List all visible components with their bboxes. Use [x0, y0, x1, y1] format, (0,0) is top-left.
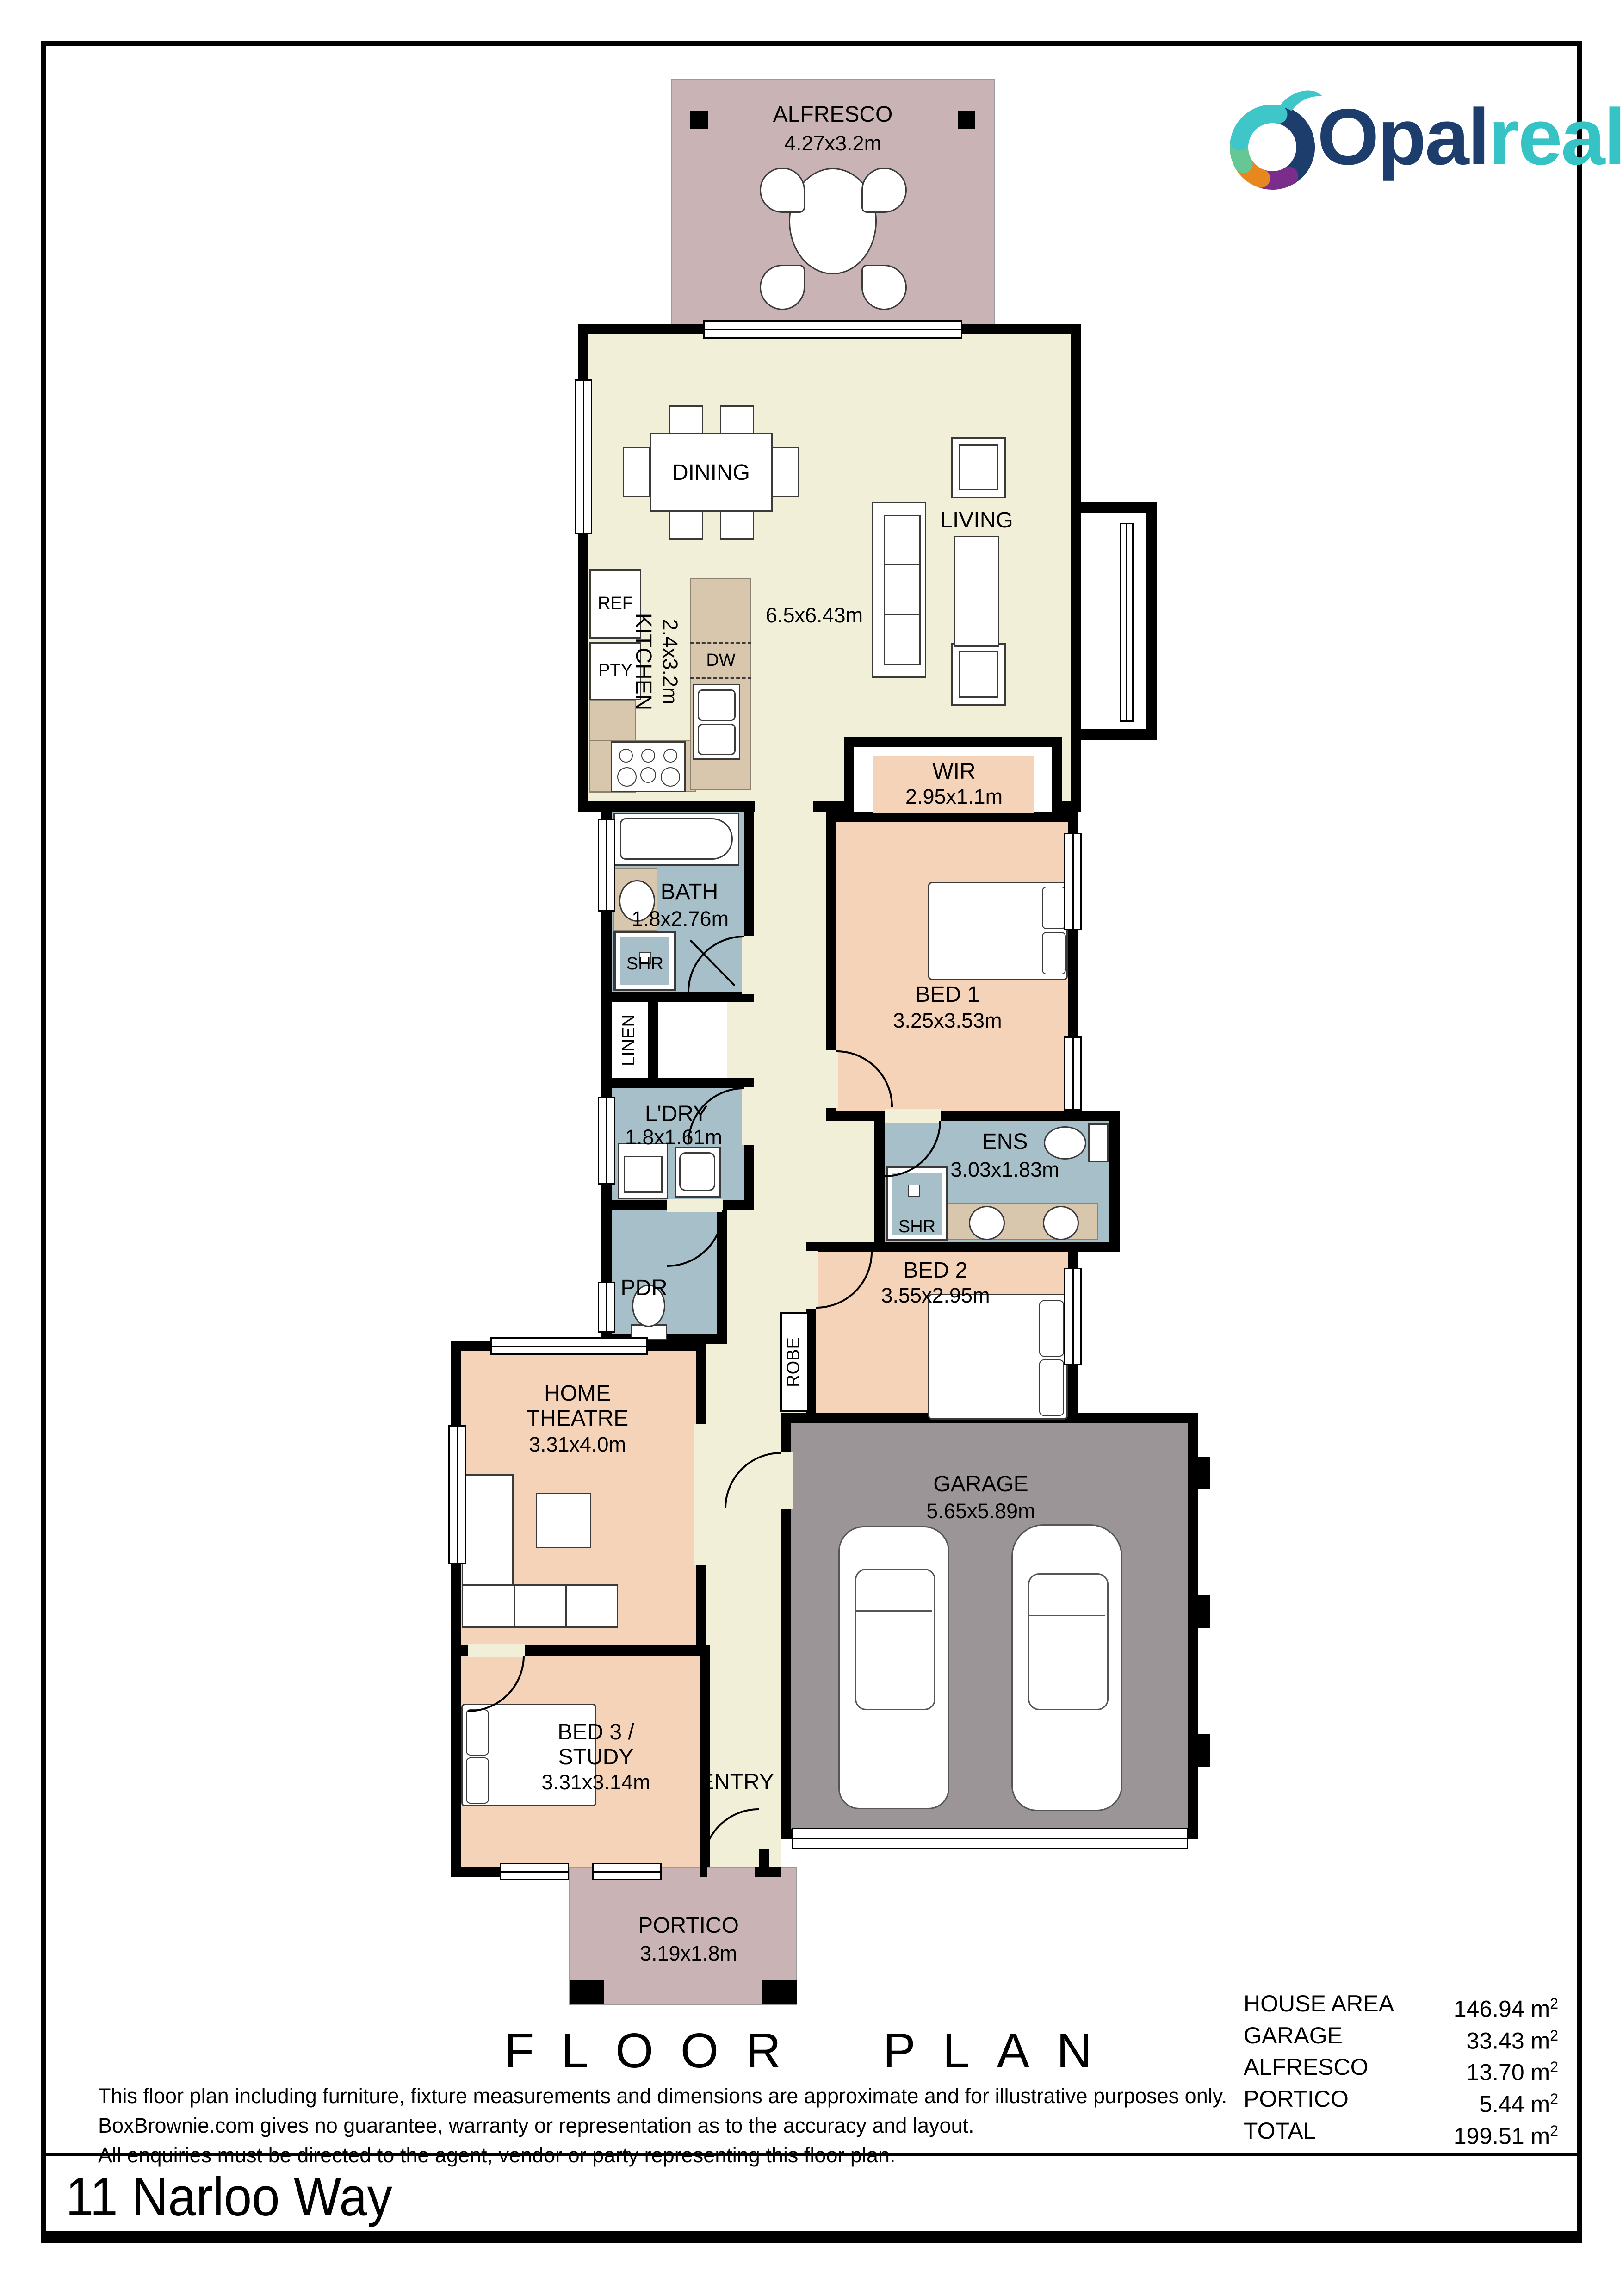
area-row: HOUSE AREA 146.94 m2 — [1244, 1991, 1558, 2023]
area-value: 146.94 m2 — [1454, 1991, 1558, 2023]
room-label-alfresco: ALFRESCO — [773, 103, 893, 126]
room-dims-alfresco: 4.27x3.2m — [784, 131, 881, 155]
room-label-wir: WIR — [932, 760, 975, 783]
door-arc — [816, 1252, 872, 1308]
door-arc — [836, 1051, 892, 1107]
area-table: HOUSE AREA 146.94 m2 GARAGE 33.43 m2 ALF… — [1244, 1991, 1558, 2149]
label-shr-ens: SHR — [898, 1218, 935, 1236]
room-dims-living: 6.5x6.43m — [766, 603, 863, 627]
room-label-entry: ENTRY — [699, 1771, 774, 1794]
room-label-bed2: BED 2 — [904, 1259, 968, 1282]
room-label-bed1: BED 1 — [916, 983, 980, 1006]
brand-primary: Opal — [1317, 91, 1488, 183]
area-label: HOUSE AREA — [1244, 1991, 1394, 2023]
opal-swirl-icon — [1221, 82, 1326, 191]
room-label-bath: BATH — [661, 881, 718, 904]
room-label-ens: ENS — [982, 1130, 1028, 1154]
room-dims-bed2: 3.55x2.95m — [881, 1284, 990, 1308]
room-dims-portico: 3.19x1.8m — [640, 1942, 737, 1966]
door-arc — [468, 1656, 524, 1711]
property-address: 11 Narloo Way — [66, 2166, 392, 2228]
room-label-dining: DINING — [672, 461, 750, 484]
room-dims-bed1: 3.25x3.53m — [893, 1009, 1002, 1033]
door-arc — [885, 1121, 940, 1176]
floor-plan-page: Opalrealty — [0, 0, 1623, 2296]
label-dw: DW — [706, 652, 735, 670]
area-value: 199.51 m2 — [1454, 2118, 1558, 2150]
room-dims-garage: 5.65x5.89m — [926, 1499, 1035, 1523]
room-dims-home-theatre: 3.31x4.0m — [529, 1433, 626, 1457]
area-row: GARAGE 33.43 m2 — [1244, 2023, 1558, 2054]
area-label: ALFRESCO — [1244, 2054, 1369, 2086]
area-row: ALFRESCO 13.70 m2 — [1244, 2054, 1558, 2086]
label-ref: REF — [598, 595, 633, 613]
room-dims-bath: 1.8x2.76m — [632, 907, 729, 931]
room-dims-ldry: 1.8x1.61m — [625, 1125, 722, 1149]
door-arc — [667, 1210, 723, 1266]
room-label-kitchen: KITCHEN — [632, 613, 655, 711]
area-value: 5.44 m2 — [1479, 2086, 1558, 2118]
area-label: TOTAL — [1244, 2118, 1316, 2150]
room-label-bed3-2: STUDY — [558, 1746, 634, 1769]
door-arc — [688, 937, 744, 992]
floor-plan-title: FLOOR PLAN — [504, 2023, 1119, 2079]
disclaimer: This floor plan including furniture, fix… — [98, 2081, 1227, 2170]
room-label-garage: GARAGE — [933, 1473, 1028, 1496]
disclaimer-line: This floor plan including furniture, fix… — [98, 2081, 1227, 2111]
room-label-ldry: L'DRY — [645, 1103, 708, 1126]
room-label-robe: ROBE — [785, 1337, 803, 1387]
door-arc — [725, 1453, 781, 1508]
area-label: PORTICO — [1244, 2086, 1349, 2118]
disclaimer-line: BoxBrownie.com gives no guarantee, warra… — [98, 2111, 1227, 2141]
room-dims-wir: 2.95x1.1m — [905, 785, 1003, 809]
label-pty: PTY — [598, 662, 632, 680]
room-dims-bed3: 3.31x3.14m — [541, 1770, 650, 1794]
door-arcs — [0, 0, 1623, 2296]
area-label: GARAGE — [1244, 2023, 1343, 2054]
brand-secondary: realty — [1488, 91, 1623, 183]
agency-logo: Opalrealty — [1221, 82, 1623, 191]
room-label-bed3-1: BED 3 / — [558, 1721, 634, 1744]
area-value: 13.70 m2 — [1467, 2054, 1558, 2086]
area-row: PORTICO 5.44 m2 — [1244, 2086, 1558, 2118]
room-label-linen: LINEN — [620, 1014, 638, 1066]
area-value: 33.43 m2 — [1467, 2023, 1558, 2054]
room-dims-kitchen: 2.4x3.2m — [658, 619, 682, 704]
room-dims-ens: 3.03x1.83m — [950, 1158, 1059, 1182]
room-label-home-theatre-2: THEATRE — [527, 1407, 628, 1430]
room-label-portico: PORTICO — [638, 1914, 739, 1937]
label-shr-bath: SHR — [626, 955, 663, 974]
room-label-home-theatre-1: HOME — [544, 1382, 611, 1405]
room-label-pdr: PDR — [620, 1277, 667, 1300]
area-row: TOTAL 199.51 m2 — [1244, 2118, 1558, 2150]
door-arc — [703, 1809, 759, 1865]
room-label-living: LIVING — [940, 509, 1013, 532]
